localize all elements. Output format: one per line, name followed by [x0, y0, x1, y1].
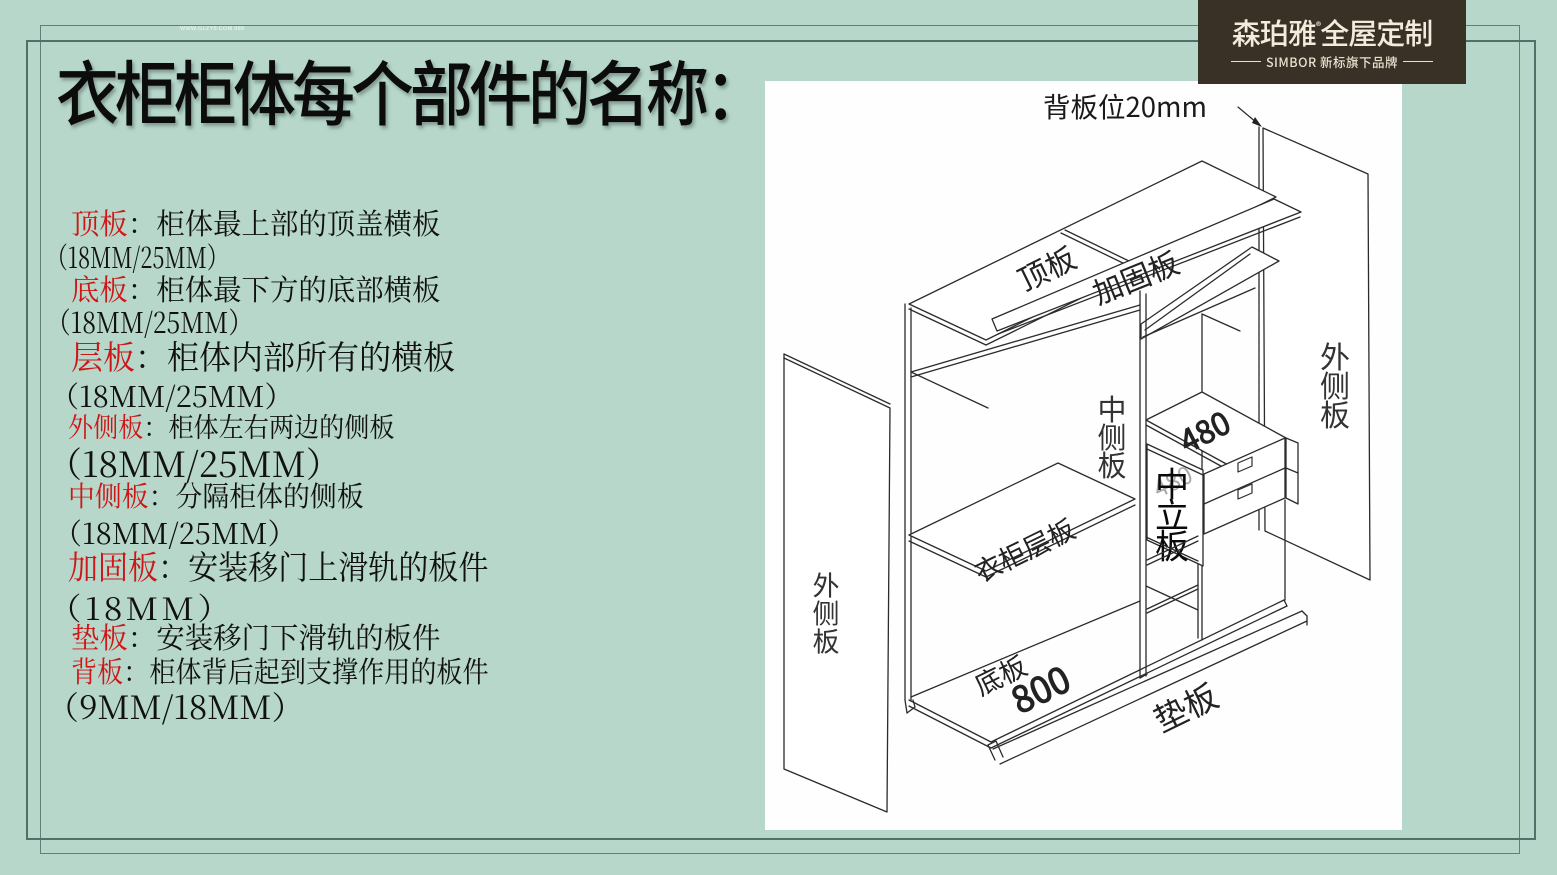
- svg-text:板: 板: [1320, 391, 1350, 435]
- svg-text:板: 板: [1097, 443, 1126, 485]
- svg-text:背板位20mm: 背板位20mm: [1043, 85, 1207, 125]
- svg-text:垫板: 垫板: [1145, 670, 1225, 742]
- svg-text:板: 板: [813, 621, 840, 660]
